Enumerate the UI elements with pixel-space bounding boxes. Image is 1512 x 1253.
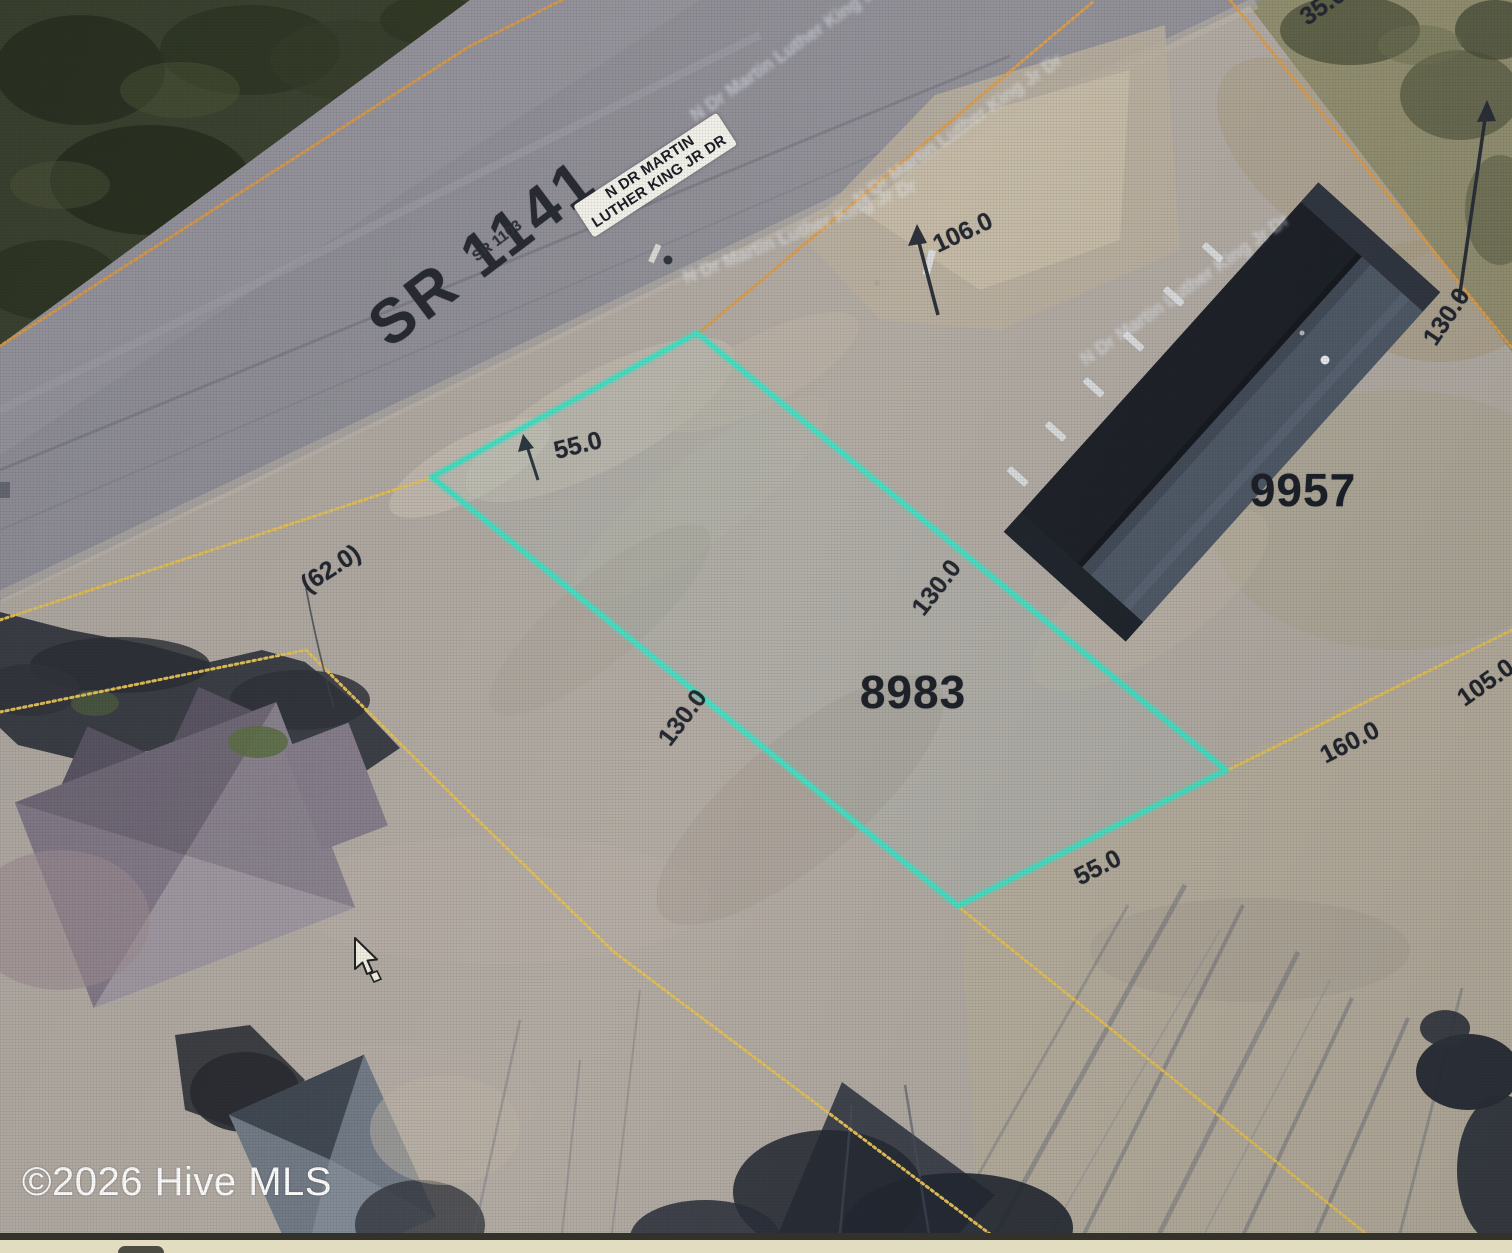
parcel-number-8983: 8983 <box>860 665 966 719</box>
bottom-strip-logo <box>118 1246 164 1253</box>
window-bottom-edge <box>0 1233 1512 1253</box>
mls-watermark: ©2026 Hive MLS <box>22 1160 332 1205</box>
parcel-number-9957: 9957 <box>1250 463 1356 517</box>
aerial-parcel-map[interactable]: N Dr Martin Luther King Jr Dr N Dr Marti… <box>0 0 1512 1253</box>
map-imagery <box>0 0 1512 1253</box>
roof-vent <box>1321 356 1330 365</box>
bush <box>228 726 288 758</box>
mouse-cursor <box>352 936 392 984</box>
